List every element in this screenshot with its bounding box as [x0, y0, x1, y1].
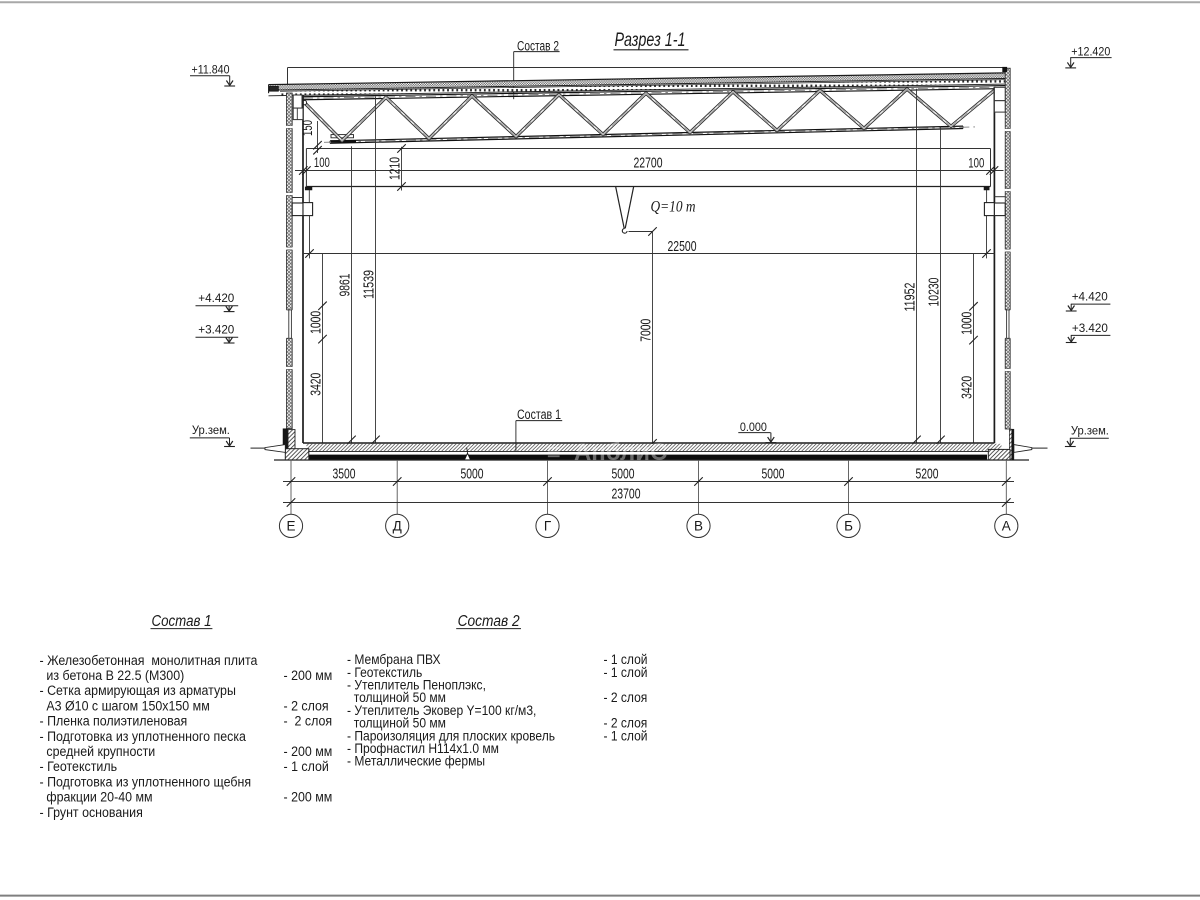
svg-text:- 1 слой: - 1 слой [284, 758, 329, 774]
svg-text:Ур.зем.: Ур.зем. [1071, 423, 1109, 437]
svg-text:+11.840: +11.840 [192, 63, 230, 77]
svg-text:+4.420: +4.420 [198, 291, 234, 305]
svg-text:Д: Д [393, 519, 402, 534]
svg-text:3500: 3500 [333, 467, 356, 483]
svg-text:- Грунт основания: - Грунт основания [40, 804, 143, 820]
svg-text:- 2 слоя: - 2 слоя [604, 689, 648, 705]
svg-text:3420: 3420 [309, 373, 325, 396]
svg-text:- 2 слоя: - 2 слоя [284, 698, 329, 714]
svg-text:+3.420: +3.420 [1072, 321, 1108, 335]
svg-text:5000: 5000 [762, 467, 785, 483]
svg-text:22500: 22500 [668, 238, 697, 255]
svg-text:- 200 мм: - 200 мм [284, 789, 333, 805]
svg-text:Состав 1: Состав 1 [517, 407, 561, 422]
svg-text:- Подготовка из уплотненного щ: - Подготовка из уплотненного щебня [40, 774, 252, 790]
svg-text:5200: 5200 [916, 467, 939, 483]
svg-text:+12.420: +12.420 [1071, 45, 1110, 59]
svg-text:фракции 20-40 мм: фракции 20-40 мм [40, 789, 153, 805]
svg-text:Состав 2: Состав 2 [517, 38, 559, 53]
svg-text:3420: 3420 [960, 376, 976, 399]
svg-text:- 1 слой: - 1 слой [604, 727, 648, 743]
svg-text:В: В [694, 519, 703, 534]
svg-text:А3 Ø10 с шагом 150х150 мм: А3 Ø10 с шагом 150х150 мм [40, 698, 210, 714]
svg-text:Состав 2: Состав 2 [458, 613, 520, 630]
svg-text:1000: 1000 [309, 311, 325, 334]
svg-text:≡ АнблиС: ≡ АнблиС [547, 439, 668, 466]
svg-text:из бетона В 22.5 (М300): из бетона В 22.5 (М300) [40, 667, 185, 683]
svg-text:А: А [1002, 519, 1011, 534]
svg-text:- 200 мм: - 200 мм [284, 743, 333, 759]
svg-text:- 2 слоя: - 2 слоя [284, 713, 333, 729]
svg-text:100: 100 [968, 155, 984, 170]
svg-text:- Железобетонная монолитная п: - Железобетонная монолитная плита [40, 652, 258, 668]
svg-text:средней крупности: средней крупности [40, 743, 156, 759]
svg-text:- Пленка полиэтиленовая: - Пленка полиэтиленовая [40, 713, 188, 729]
svg-text:Ур.зем.: Ур.зем. [192, 423, 230, 437]
svg-text:11952: 11952 [903, 283, 919, 312]
svg-text:150: 150 [300, 120, 315, 136]
svg-text:7000: 7000 [639, 319, 655, 342]
svg-text:- Подготовка из уплотненного п: - Подготовка из уплотненного песка [40, 728, 247, 744]
svg-text:23700: 23700 [612, 487, 641, 503]
svg-text:Г: Г [544, 519, 552, 534]
svg-text:10230: 10230 [927, 278, 943, 307]
svg-text:0.000: 0.000 [740, 420, 767, 434]
svg-text:9861: 9861 [338, 274, 354, 297]
svg-text:+4.420: +4.420 [1072, 290, 1108, 304]
svg-text:11539: 11539 [362, 270, 378, 299]
svg-text:- Сетка армирующая из арматуры: - Сетка армирующая из арматуры [40, 682, 236, 698]
svg-text:5000: 5000 [612, 467, 635, 483]
svg-text:5000: 5000 [461, 467, 484, 483]
svg-text:100: 100 [314, 155, 330, 170]
svg-text:Состав 1: Состав 1 [152, 613, 212, 630]
svg-text:Разрез 1-1: Разрез 1-1 [615, 30, 686, 51]
svg-text:Е: Е [286, 519, 295, 534]
svg-text:1000: 1000 [960, 312, 976, 335]
svg-text:- Металлические фермы: - Металлические фермы [347, 753, 485, 769]
svg-text:22700: 22700 [634, 154, 663, 171]
svg-text:1210: 1210 [388, 157, 404, 180]
svg-text:Б: Б [844, 519, 853, 534]
svg-text:- 200 мм: - 200 мм [284, 667, 333, 683]
svg-text:Q=10 m: Q=10 m [651, 199, 696, 216]
svg-text:+3.420: +3.420 [198, 323, 234, 337]
svg-text:- 1 слой: - 1 слой [604, 664, 648, 680]
svg-text:- Геотекстиль: - Геотекстиль [40, 758, 118, 774]
